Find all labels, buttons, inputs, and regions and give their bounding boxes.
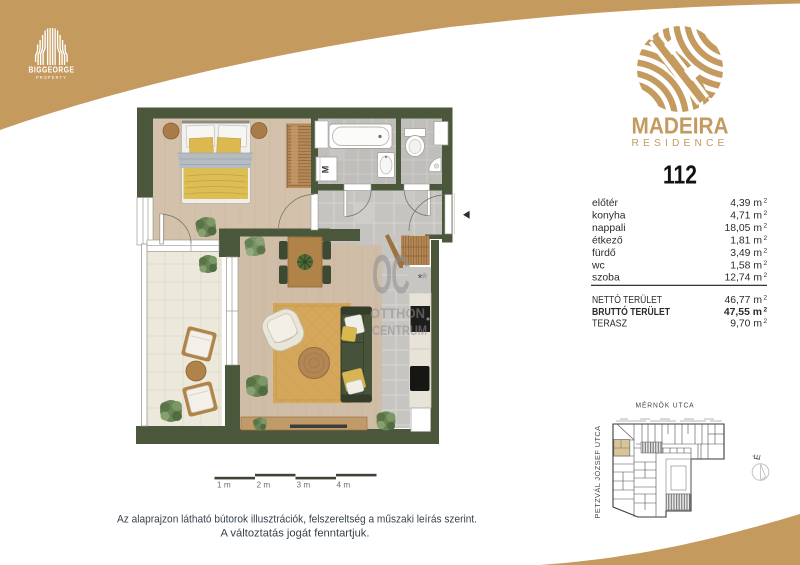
svg-text:2: 2: [764, 295, 768, 302]
svg-text:2: 2: [764, 260, 768, 267]
svg-text:2: 2: [764, 210, 768, 217]
svg-text:TERASZ: TERASZ: [592, 319, 628, 330]
svg-text:112: 112: [663, 162, 697, 190]
svg-text:OTTHON: OTTHON: [370, 305, 425, 321]
svg-text:PROPERTY: PROPERTY: [36, 75, 67, 80]
svg-text:3 m: 3 m: [297, 481, 311, 490]
svg-text:4,39 m: 4,39 m: [730, 198, 762, 209]
svg-text:2: 2: [764, 272, 768, 279]
svg-text:MADEIRA: MADEIRA: [632, 113, 729, 139]
svg-text:2: 2: [764, 306, 768, 313]
svg-text:2: 2: [764, 235, 768, 242]
svg-text:fürdő: fürdő: [592, 248, 616, 259]
svg-text:konyha: konyha: [592, 211, 626, 222]
svg-text:1,81 m: 1,81 m: [730, 236, 762, 247]
svg-text:9,70 m: 9,70 m: [730, 319, 762, 330]
svg-text:Az alaprajzon látható bútorok: Az alaprajzon látható bútorok illusztrác…: [117, 514, 477, 526]
svg-text:M: M: [321, 166, 331, 174]
svg-text:2: 2: [764, 318, 768, 325]
svg-text:18,05 m: 18,05 m: [724, 223, 762, 234]
svg-text:3,49 m: 3,49 m: [730, 248, 762, 259]
svg-text:1 m: 1 m: [217, 481, 231, 490]
svg-text:12,74 m: 12,74 m: [724, 273, 762, 284]
svg-text:előtér: előtér: [592, 198, 619, 209]
svg-text:46,77 m: 46,77 m: [724, 295, 762, 306]
svg-text:OC: OC: [372, 243, 410, 305]
svg-text:BRUTTÓ TERÜLET: BRUTTÓ TERÜLET: [592, 305, 671, 318]
svg-text:A változtatás jogát fenntartju: A változtatás jogát fenntartjuk.: [221, 528, 370, 540]
svg-text:2: 2: [764, 248, 768, 255]
svg-text:*: *: [421, 269, 428, 288]
svg-text:4,71 m: 4,71 m: [730, 211, 762, 222]
svg-text:étkező: étkező: [592, 236, 623, 247]
svg-text:CENTRUM: CENTRUM: [372, 322, 427, 338]
svg-text:nappali: nappali: [592, 223, 626, 234]
svg-text:MÉRNÖK UTCA: MÉRNÖK UTCA: [636, 401, 695, 410]
svg-text:NETTÓ TERÜLET: NETTÓ TERÜLET: [592, 293, 663, 306]
svg-text:4 m: 4 m: [337, 481, 351, 490]
svg-text:RESIDENCE: RESIDENCE: [632, 138, 729, 149]
svg-text:47,55 m: 47,55 m: [724, 307, 762, 318]
svg-text:PETZVÁL JÓZSEF UTCA: PETZVÁL JÓZSEF UTCA: [593, 425, 602, 519]
svg-text:wc: wc: [591, 260, 605, 271]
svg-text:2 m: 2 m: [257, 481, 271, 490]
svg-text:2: 2: [764, 223, 768, 230]
svg-text:2: 2: [764, 198, 768, 205]
svg-text:1,58 m: 1,58 m: [730, 260, 762, 271]
svg-text:szoba: szoba: [592, 273, 620, 284]
svg-text:BIGGEORGE: BIGGEORGE: [29, 66, 75, 75]
